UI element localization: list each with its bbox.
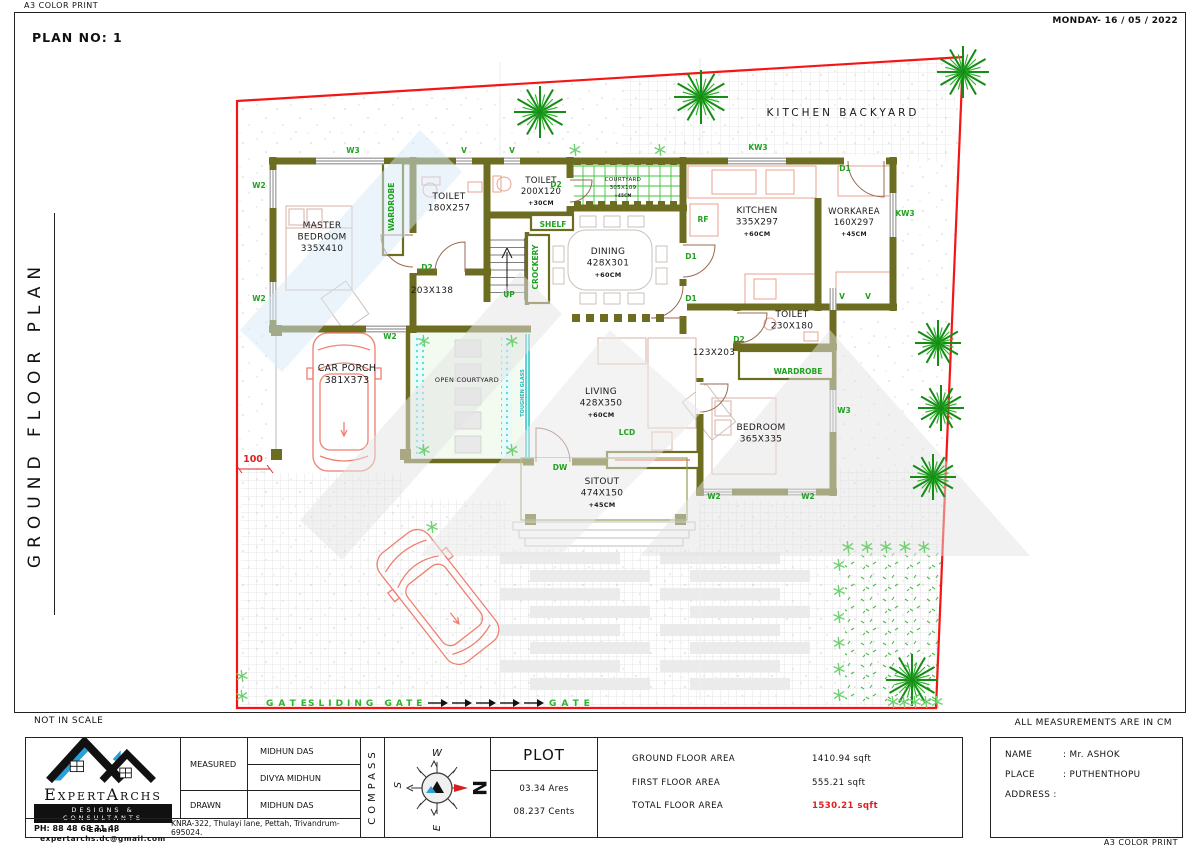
plan-tag: D2 bbox=[733, 335, 744, 344]
plan-tag: D2 bbox=[550, 180, 561, 189]
room-label: +45CM bbox=[588, 501, 615, 509]
room-label: BEDROOM bbox=[736, 423, 785, 433]
room-label: KITCHEN BACKYARD bbox=[766, 107, 919, 119]
compass-label: COMPASS bbox=[361, 738, 385, 837]
brand-name: ExpertArchs bbox=[26, 785, 180, 804]
plan-tag: SHELF bbox=[540, 220, 567, 229]
brand-address: KNRA-322, Thulayi lane, Pettah, Trivandr… bbox=[171, 819, 360, 837]
room-label: +60CM bbox=[743, 230, 770, 238]
room-label: 335X410 bbox=[301, 244, 344, 254]
plot-ares: 03.34 Ares bbox=[491, 784, 597, 794]
plot-title: PLOT bbox=[491, 738, 597, 771]
plan-tag: W3 bbox=[837, 406, 851, 415]
plan-tag: V bbox=[865, 292, 871, 301]
room-label: 365X335 bbox=[740, 435, 783, 445]
brand-phone: PH: 88 48 68 31 48 bbox=[26, 824, 171, 833]
plan-tag: W2 bbox=[707, 492, 721, 501]
measured-by: MIDHUN DAS bbox=[248, 738, 361, 765]
floor-plan-drawing: GATESLIDING GATEGATE MASTERBEDROOM335X41… bbox=[0, 0, 1200, 730]
room-label: 160X297 bbox=[834, 218, 874, 228]
total-floor-area-row: TOTAL FLOOR AREA 1530.21 sqft bbox=[632, 801, 964, 811]
compass-w: W bbox=[432, 748, 443, 759]
room-label: 180X257 bbox=[428, 204, 471, 214]
first-floor-area-row: FIRST FLOOR AREA 555.21 sqft bbox=[632, 778, 964, 788]
plan-tag: D1 bbox=[685, 252, 696, 261]
title-block: ExpertArchs DESIGNS & CONSULTANTS Email:… bbox=[25, 737, 963, 838]
ground-floor-area-label: GROUND FLOOR AREA bbox=[632, 754, 812, 764]
room-label: 428X350 bbox=[580, 399, 623, 409]
room-label: KITCHEN bbox=[736, 206, 777, 216]
compass-e: E bbox=[432, 824, 443, 831]
gate-label: GATE bbox=[549, 699, 595, 709]
plan-tag: V bbox=[509, 146, 515, 155]
room-label: TOILET bbox=[774, 310, 808, 320]
room-label: 428X301 bbox=[587, 259, 630, 269]
total-floor-area-label: TOTAL FLOOR AREA bbox=[632, 801, 812, 811]
drawn-by: MIDHUN DAS bbox=[248, 791, 361, 818]
plan-tag: D1 bbox=[685, 294, 696, 303]
plan-tag: TOUGHEN GLASS bbox=[520, 369, 526, 417]
plan-tag: UP bbox=[503, 290, 515, 299]
plan-tag: DW bbox=[553, 463, 568, 472]
plan-tag: KW3 bbox=[748, 143, 767, 152]
drawn-label: DRAWN bbox=[181, 791, 248, 818]
client-address-row: ADDRESS : bbox=[1005, 790, 1182, 800]
plot-cell: PLOT 03.34 Ares 08.237 Cents bbox=[491, 738, 598, 837]
room-label: TOILET bbox=[431, 192, 465, 202]
room-label: 230X180 bbox=[771, 322, 814, 332]
room-label: 474X150 bbox=[581, 489, 624, 499]
client-name-label: NAME bbox=[1005, 750, 1063, 760]
plan-tag: KW3 bbox=[895, 209, 914, 218]
contact-row: PH: 88 48 68 31 48 KNRA-322, Thulayi lan… bbox=[26, 818, 361, 837]
plan-tag: CROCKERY bbox=[531, 244, 540, 289]
plan-tag: W2 bbox=[252, 181, 266, 190]
room-label: DINING bbox=[591, 247, 625, 257]
compass-rose: W S E N bbox=[384, 738, 490, 837]
room-label: COURTYARD bbox=[605, 177, 641, 183]
room-label: OPEN COURTYARD bbox=[435, 376, 499, 384]
brand-logo bbox=[28, 738, 178, 784]
measured-label: MEASURED bbox=[181, 738, 248, 791]
brand-cell: ExpertArchs DESIGNS & CONSULTANTS Email:… bbox=[26, 738, 181, 818]
room-label: +60CM bbox=[587, 411, 614, 419]
print-note-bottom: A3 COLOR PRINT bbox=[1104, 838, 1178, 847]
room-label: 381X373 bbox=[325, 375, 370, 386]
room-label: 203X138 bbox=[411, 286, 454, 296]
plan-tag: V bbox=[461, 146, 467, 155]
credits-table: MEASURED DRAWN MIDHUN DAS DIVYA MIDHUN M… bbox=[181, 738, 361, 818]
lawn-patch bbox=[845, 552, 944, 706]
plan-tag: WARDROBE bbox=[774, 367, 823, 376]
client-box: NAME : Mr. ASHOK PLACE : PUTHENTHOPU ADD… bbox=[990, 737, 1183, 838]
ground-floor-area-row: GROUND FLOOR AREA 1410.94 sqft bbox=[632, 754, 964, 764]
client-place-row: PLACE : PUTHENTHOPU bbox=[1005, 770, 1182, 780]
plot-cents: 08.237 Cents bbox=[491, 807, 597, 817]
client-name-value: : Mr. ASHOK bbox=[1063, 750, 1120, 760]
page: { "page":{ "top_left_label":"A3 COLOR PR… bbox=[0, 0, 1200, 849]
room-label: 335X297 bbox=[736, 218, 779, 228]
client-place-label: PLACE bbox=[1005, 770, 1063, 780]
client-place-value: : PUTHENTHOPU bbox=[1063, 770, 1141, 780]
client-name-row: NAME : Mr. ASHOK bbox=[1005, 750, 1182, 760]
room-label: 123X203 bbox=[693, 348, 736, 358]
ground-floor-area-value: 1410.94 sqft bbox=[812, 754, 871, 764]
room-label: +30CM bbox=[528, 200, 554, 207]
plan-tag: W2 bbox=[383, 332, 397, 341]
room-label: MASTER bbox=[303, 221, 342, 231]
plan-tag: V bbox=[839, 292, 845, 301]
plan-tag: LCD bbox=[619, 428, 636, 437]
measured-by-2: DIVYA MIDHUN bbox=[248, 765, 361, 791]
plan-tag: W3 bbox=[346, 146, 360, 155]
room-label: +45CM bbox=[614, 193, 631, 198]
gate-label: SLIDING GATE bbox=[308, 699, 426, 709]
gate-label: GATE bbox=[266, 699, 312, 709]
room-label: WORKAREA bbox=[828, 207, 880, 217]
room-label: 305X109 bbox=[610, 185, 637, 191]
first-floor-area-value: 555.21 sqft bbox=[812, 778, 865, 788]
room-label: LIVING bbox=[585, 387, 617, 397]
plan-tag: D1 bbox=[839, 164, 850, 173]
plan-tag: W2 bbox=[252, 294, 266, 303]
plan-tag: RF bbox=[698, 215, 709, 224]
compass-s: S bbox=[393, 781, 404, 788]
plan-tag: D2 bbox=[421, 263, 432, 272]
plan-tag: WARDROBE bbox=[387, 183, 396, 232]
total-floor-area-value: 1530.21 sqft bbox=[812, 801, 878, 811]
areas-cell: GROUND FLOOR AREA 1410.94 sqft FIRST FLO… bbox=[598, 738, 964, 837]
compass-n: N bbox=[468, 780, 490, 796]
room-label: CAR PORCH bbox=[318, 363, 377, 374]
compass-cell: COMPASS W S E N bbox=[361, 738, 491, 837]
first-floor-area-label: FIRST FLOOR AREA bbox=[632, 778, 812, 788]
client-address-label: ADDRESS : bbox=[1005, 790, 1057, 800]
room-label: BEDROOM bbox=[297, 233, 346, 243]
room-label: +45CM bbox=[841, 231, 867, 238]
plan-tag: 100 bbox=[243, 454, 263, 465]
room-label: SITOUT bbox=[585, 477, 620, 487]
plan-tag: W2 bbox=[801, 492, 815, 501]
room-label: +60CM bbox=[594, 271, 621, 279]
